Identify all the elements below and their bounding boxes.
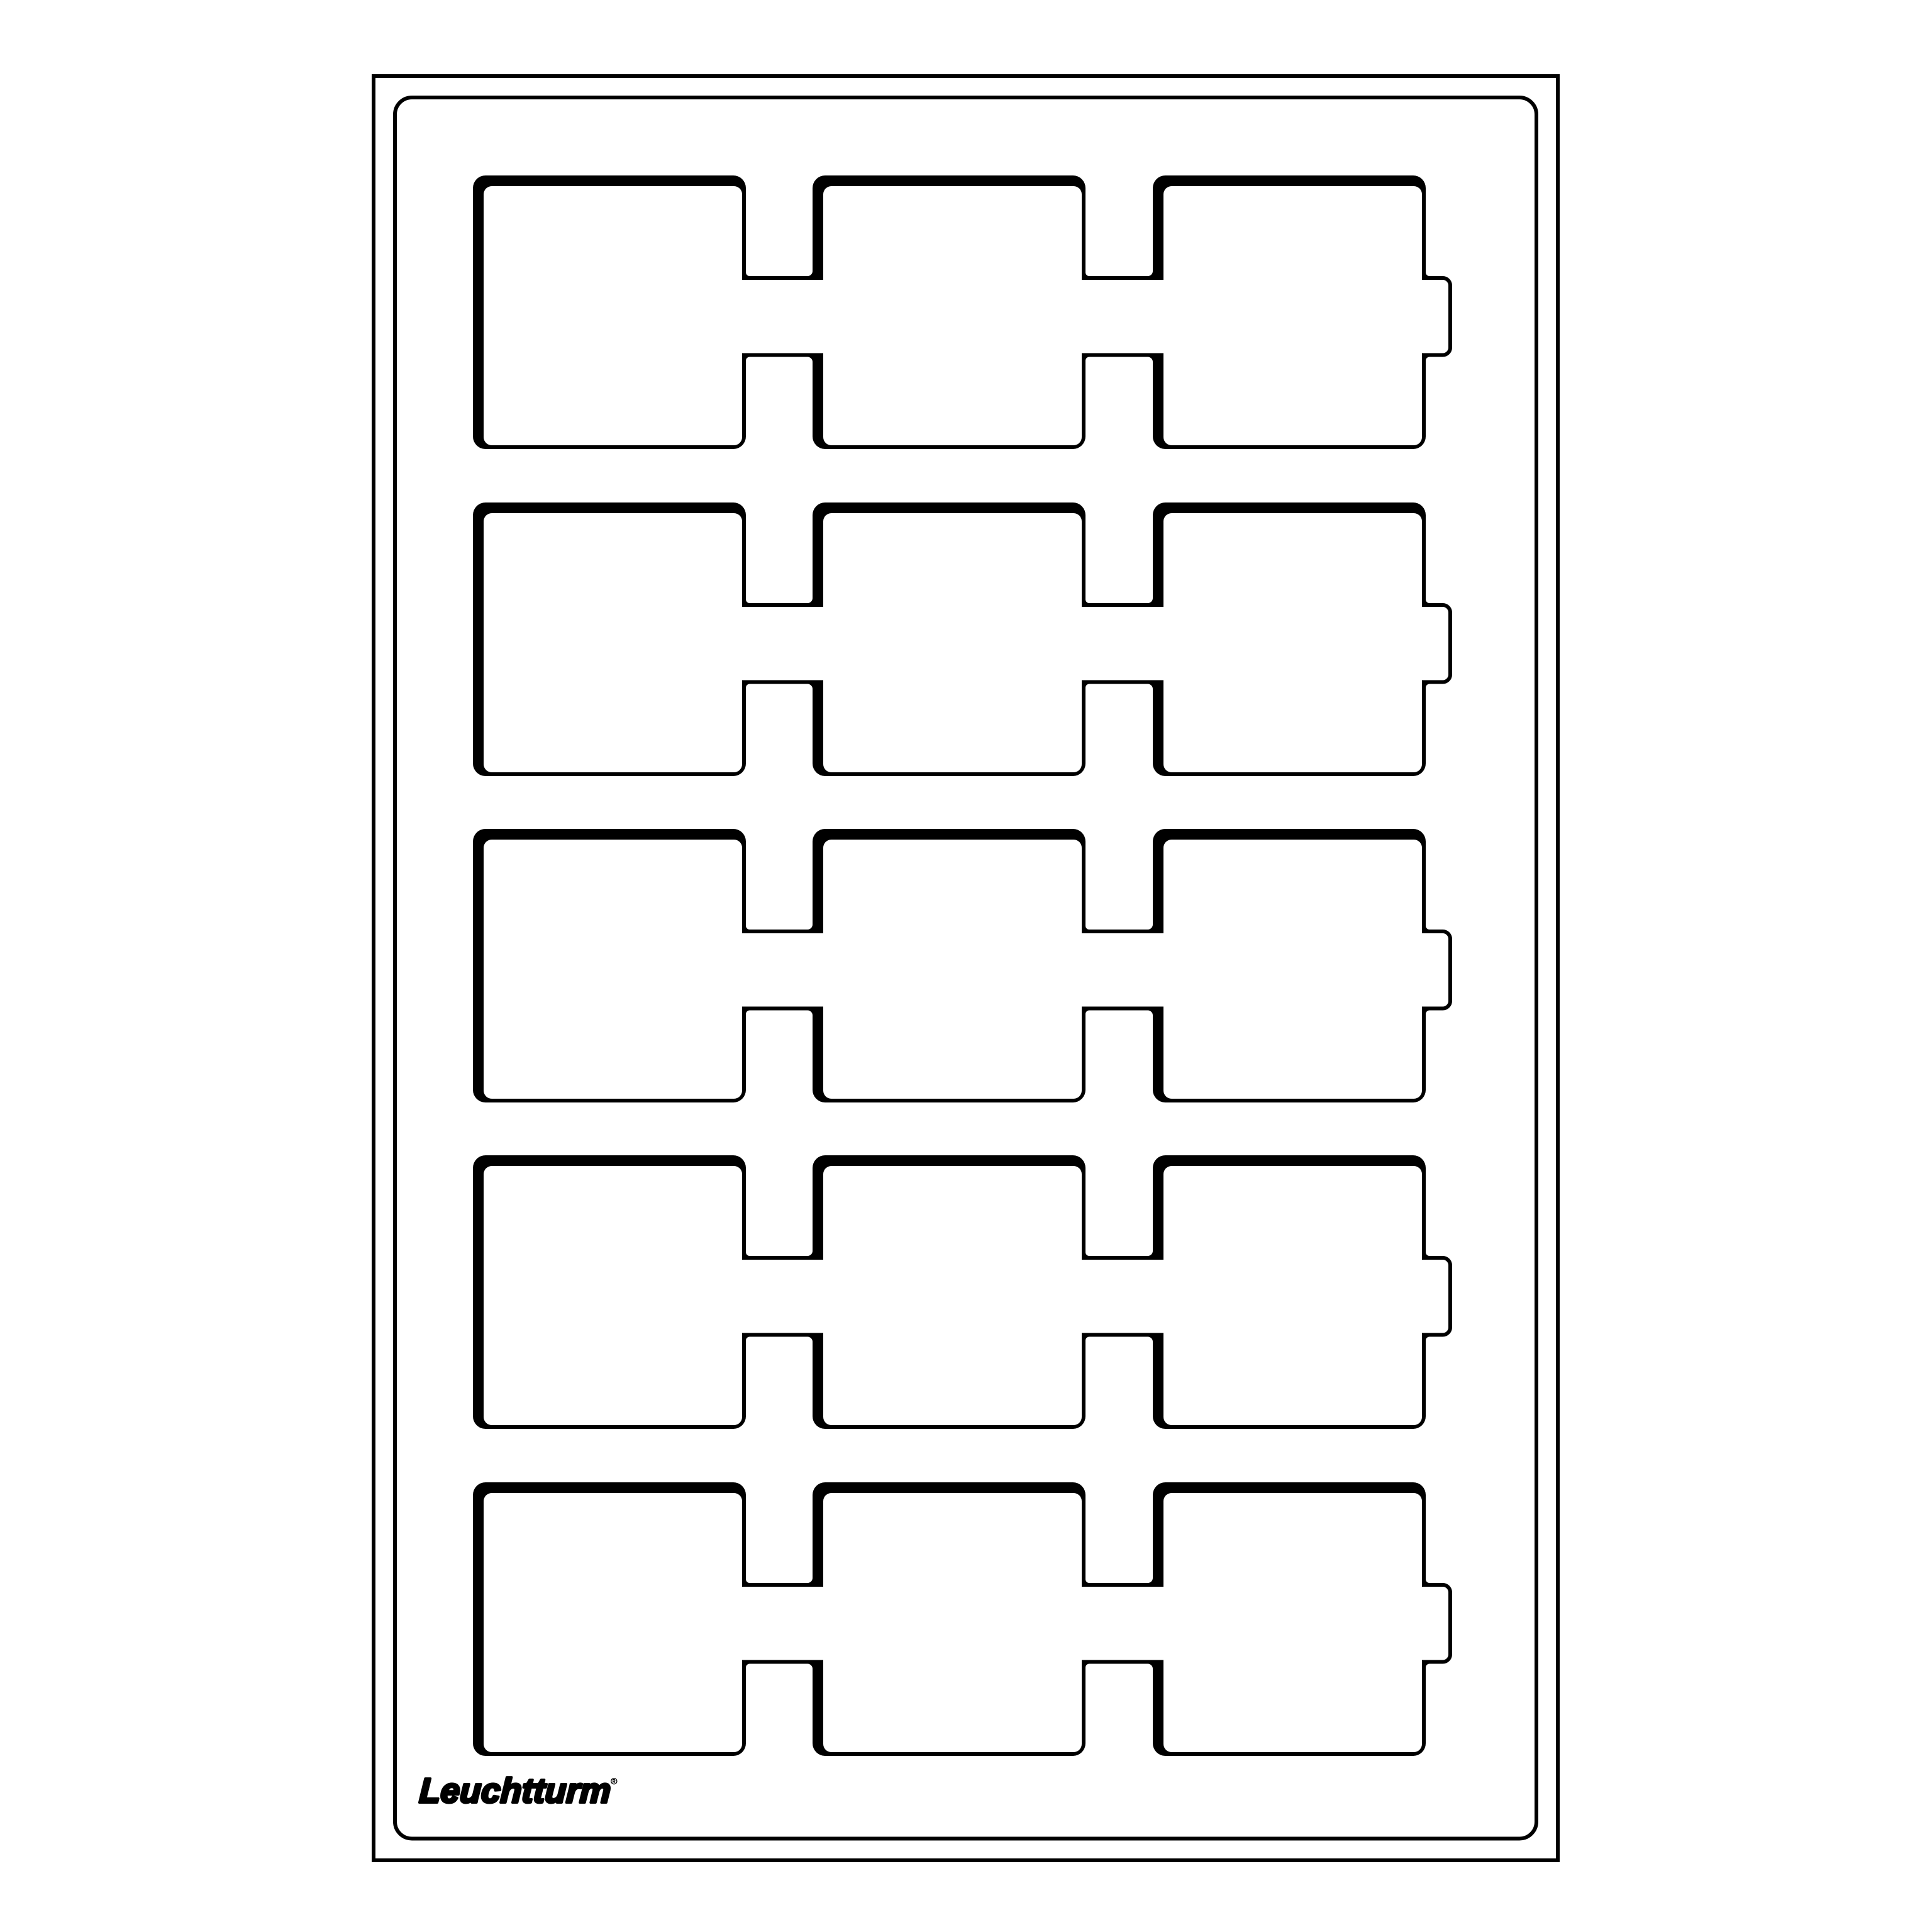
svg-text:Leuchtturm: Leuchtturm [418, 1771, 612, 1810]
